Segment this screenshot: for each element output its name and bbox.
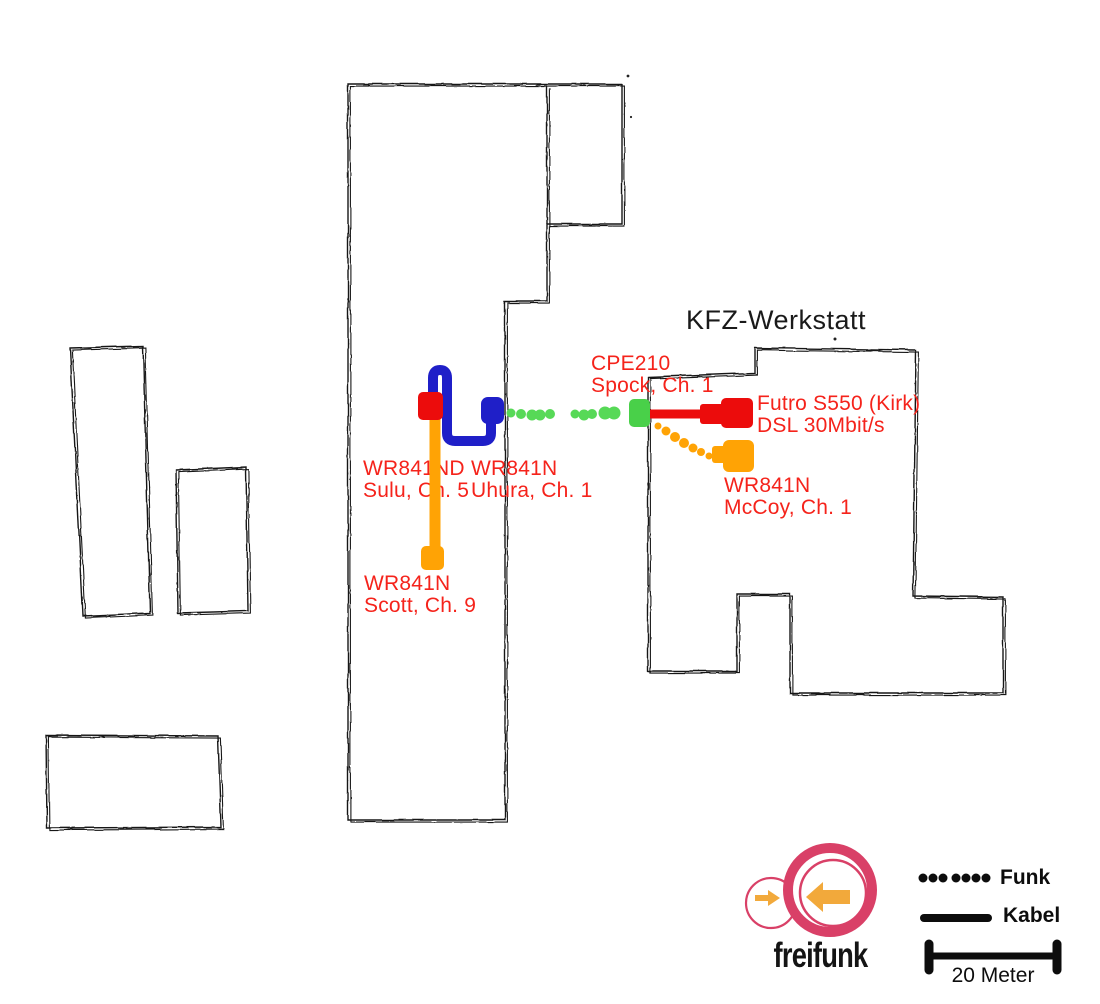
legend-funk-text: Funk <box>1000 866 1050 889</box>
label-scott: WR841N Scott, Ch. 9 <box>364 573 476 617</box>
label-spock-name: Spock, Ch. 1 <box>591 375 714 397</box>
label-sulu: WR841ND Sulu, Ch. 5 <box>363 458 469 502</box>
network-map: KFZ-Werkstatt WR841ND Sulu, Ch. 5 WR841N… <box>0 0 1100 1004</box>
floorplan-layer <box>0 0 1100 1004</box>
label-kirk-name: DSL 30Mbit/s <box>757 415 920 437</box>
label-scott-name: Scott, Ch. 9 <box>364 595 476 617</box>
label-spock: CPE210 Spock, Ch. 1 <box>591 353 714 397</box>
label-sulu-model: WR841ND <box>363 458 469 480</box>
building-main-outline-2 <box>350 86 624 822</box>
label-mccoy: WR841N McCoy, Ch. 1 <box>724 475 852 519</box>
legend-funk-label: Funk <box>1000 866 1050 890</box>
kfz-werkstatt-title-text: KFZ-Werkstatt <box>686 305 866 335</box>
label-kirk: Futro S550 (Kirk) DSL 30Mbit/s <box>757 393 920 437</box>
building-left-tall-outline-2 <box>72 348 152 618</box>
label-mccoy-name: McCoy, Ch. 1 <box>724 497 852 519</box>
scale-bar-text: 20 Meter <box>952 964 1035 987</box>
scan-specks <box>627 75 837 341</box>
scale-bar-label: 20 Meter <box>938 964 1048 988</box>
label-uhura-name: Uhura, Ch. 1 <box>471 480 592 502</box>
building-left-small-outline-2 <box>178 469 250 615</box>
kfz-werkstatt-title: KFZ-Werkstatt <box>686 305 866 336</box>
label-spock-model: CPE210 <box>591 353 714 375</box>
building-left-tall-outline <box>70 346 150 616</box>
building-main-outline <box>348 84 622 820</box>
freifunk-wordmark: freifunk <box>764 936 877 976</box>
label-mccoy-model: WR841N <box>724 475 852 497</box>
label-scott-model: WR841N <box>364 573 476 595</box>
freifunk-wordmark-text: freifunk <box>774 936 868 975</box>
label-uhura: WR841N Uhura, Ch. 1 <box>471 458 592 502</box>
label-sulu-name: Sulu, Ch. 5 <box>363 480 469 502</box>
legend-kabel-text: Kabel <box>1003 904 1060 927</box>
building-bottom-left-outline <box>46 735 221 828</box>
building-bottom-left-outline-2 <box>48 737 223 830</box>
label-kirk-model: Futro S550 (Kirk) <box>757 393 920 415</box>
building-left-small-outline <box>176 467 248 613</box>
label-uhura-model: WR841N <box>471 458 592 480</box>
legend-kabel-label: Kabel <box>1003 904 1060 928</box>
